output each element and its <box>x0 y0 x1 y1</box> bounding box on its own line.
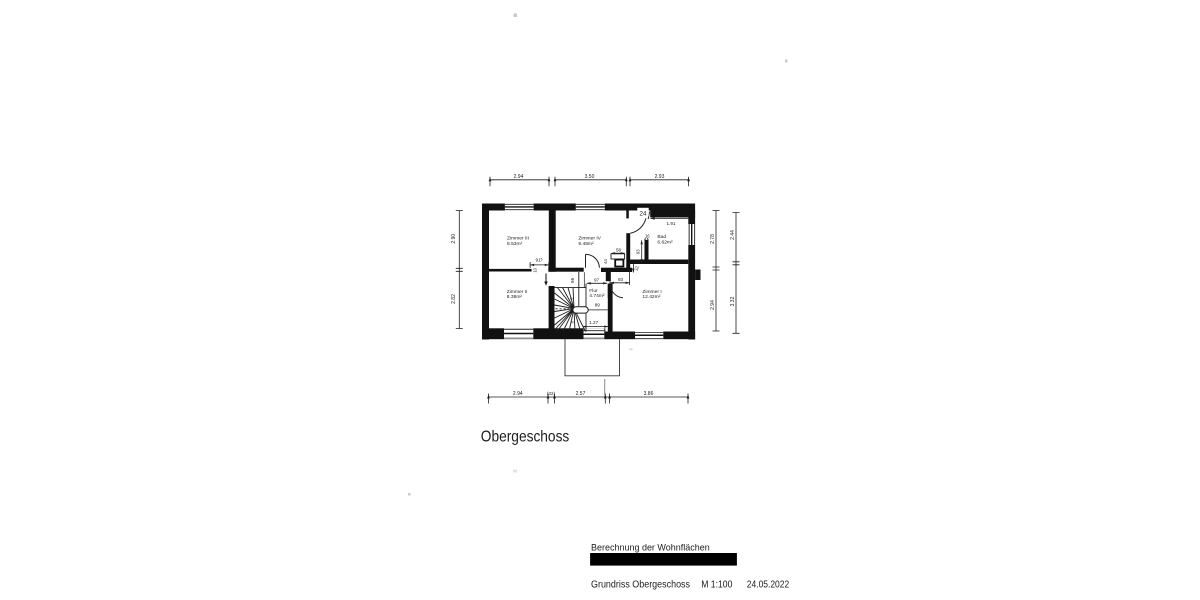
svg-text:42: 42 <box>634 265 639 270</box>
svg-text:Zimmer III: Zimmer III <box>507 236 529 242</box>
svg-text:Bad: Bad <box>657 234 666 240</box>
svg-text:24: 24 <box>640 211 647 218</box>
svg-text:9.48m²: 9.48m² <box>578 241 594 247</box>
svg-text:44: 44 <box>603 259 608 264</box>
svg-text:24.05.2022: 24.05.2022 <box>747 579 790 590</box>
svg-text:4.74m²: 4.74m² <box>589 293 605 299</box>
svg-text:M 1:100: M 1:100 <box>701 579 732 590</box>
svg-text:2.44: 2.44 <box>730 230 736 240</box>
svg-text:56: 56 <box>616 248 622 253</box>
svg-text:8.38m²: 8.38m² <box>507 294 523 300</box>
svg-text:8: 8 <box>571 321 575 323</box>
svg-text:97: 97 <box>594 278 600 283</box>
svg-text:Zimmer IV: Zimmer IV <box>578 236 601 242</box>
svg-text:2.93: 2.93 <box>655 174 665 180</box>
svg-text:2.94: 2.94 <box>710 300 716 310</box>
svg-text:3.86: 3.86 <box>644 391 654 397</box>
svg-text:93: 93 <box>618 277 624 282</box>
svg-text:Obergeschoss: Obergeschoss <box>481 429 570 446</box>
svg-text:2.94: 2.94 <box>513 391 523 397</box>
svg-text:2.78: 2.78 <box>710 234 716 244</box>
svg-text:12.42m²: 12.42m² <box>642 294 660 300</box>
svg-text:2.90: 2.90 <box>451 234 457 244</box>
svg-text:Flur: Flur <box>589 288 598 294</box>
svg-text:86: 86 <box>570 277 575 283</box>
svg-text:Zimmer I: Zimmer I <box>642 289 661 295</box>
svg-text:16: 16 <box>645 233 650 238</box>
svg-text:(32): (32) <box>547 391 556 396</box>
svg-text:8.53m²: 8.53m² <box>507 241 523 247</box>
svg-text:2.57: 2.57 <box>576 391 586 397</box>
svg-text:1.27: 1.27 <box>589 320 598 325</box>
svg-text:89: 89 <box>595 303 601 308</box>
svg-text:6.62m²: 6.62m² <box>657 239 673 245</box>
svg-text:Berechnung der Wohnflächen: Berechnung der Wohnflächen <box>591 542 710 553</box>
svg-text:Grundriss Obergeschoss: Grundriss Obergeschoss <box>591 579 690 590</box>
svg-text:8: 8 <box>569 298 573 300</box>
svg-text:3.32: 3.32 <box>730 296 736 306</box>
svg-text:1.91: 1.91 <box>667 221 676 226</box>
svg-text:3.50: 3.50 <box>585 174 595 180</box>
svg-text:93: 93 <box>636 249 641 254</box>
svg-text:10: 10 <box>533 267 538 272</box>
svg-text:Zimmer II: Zimmer II <box>507 289 528 295</box>
svg-text:2.82: 2.82 <box>451 294 457 304</box>
svg-text:2.94: 2.94 <box>514 174 524 180</box>
svg-text:915: 915 <box>536 257 543 263</box>
